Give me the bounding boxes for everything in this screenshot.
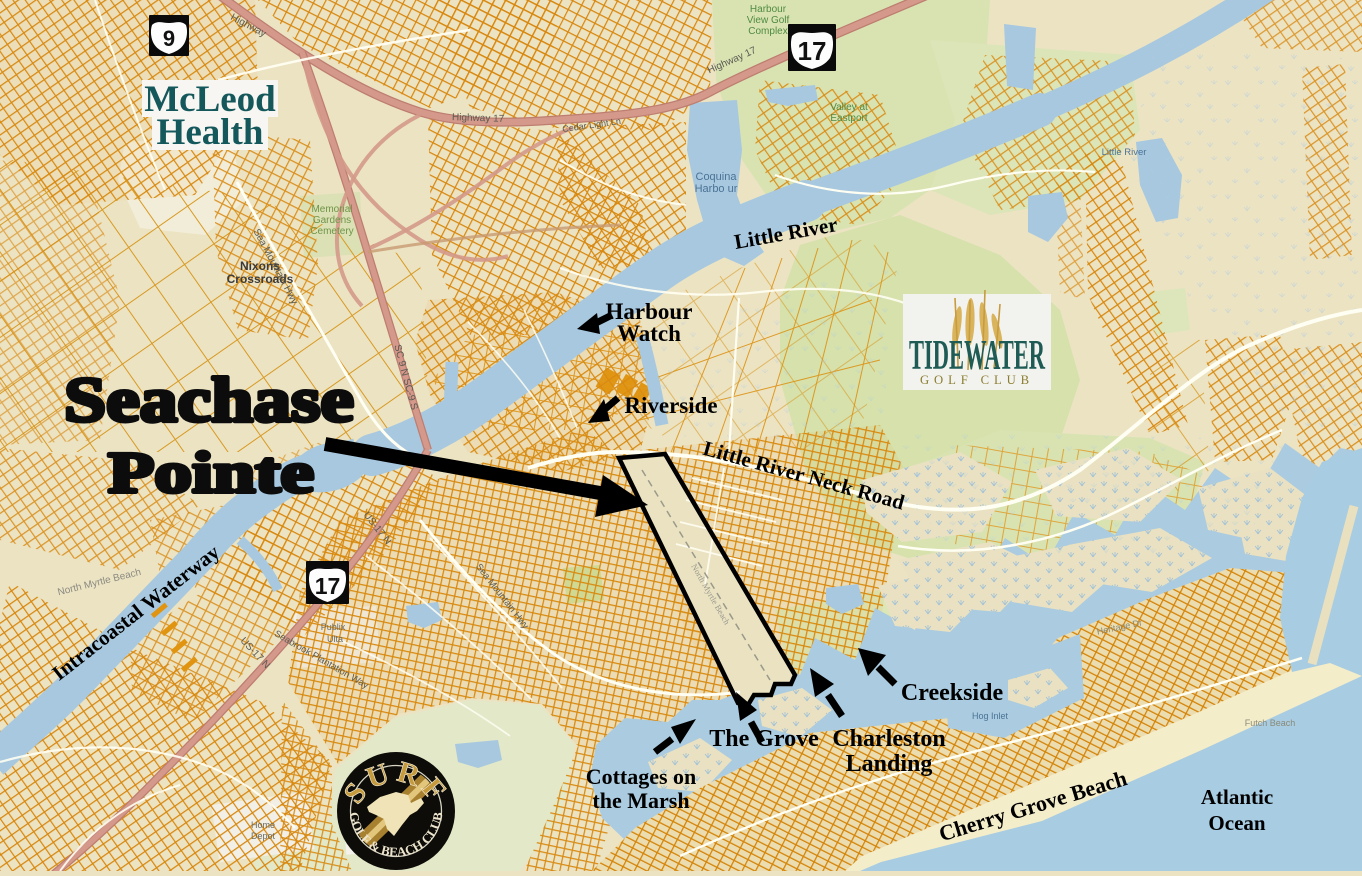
svg-text:View Golf: View Golf (747, 15, 790, 26)
svg-text:Hog Inlet: Hog Inlet (972, 711, 1009, 721)
svg-text:Harbo ur: Harbo ur (695, 183, 738, 195)
svg-text:Home: Home (251, 820, 275, 830)
svg-text:Pointe: Pointe (108, 440, 314, 505)
svg-text:17: 17 (315, 573, 341, 599)
svg-text:The Grove: The Grove (709, 726, 819, 752)
svg-text:Gardens: Gardens (313, 215, 351, 226)
svg-text:Riverside: Riverside (624, 393, 717, 418)
svg-text:Creekside: Creekside (901, 680, 1004, 706)
svg-text:Cottages on: Cottages on (586, 764, 697, 789)
svg-text:Health: Health (157, 112, 264, 153)
svg-text:Futch Beach: Futch Beach (1245, 718, 1296, 728)
svg-text:GOLF CLUB: GOLF CLUB (920, 372, 1034, 387)
svg-text:Atlantic: Atlantic (1201, 785, 1273, 809)
svg-text:Memorial: Memorial (311, 204, 352, 215)
svg-text:9: 9 (163, 26, 175, 51)
svg-text:Ocean: Ocean (1208, 811, 1265, 835)
svg-text:Valley at: Valley at (830, 102, 868, 113)
svg-text:Coquina: Coquina (696, 171, 738, 183)
svg-text:17: 17 (798, 36, 827, 66)
svg-text:Little River: Little River (1102, 147, 1147, 158)
svg-text:Eastport: Eastport (830, 113, 867, 124)
svg-text:Seachase: Seachase (64, 364, 354, 435)
svg-text:Highway 17: Highway 17 (452, 112, 505, 125)
svg-text:the Marsh: the Marsh (592, 788, 689, 813)
svg-text:Cemetery: Cemetery (310, 226, 353, 237)
svg-text:Landing: Landing (846, 751, 933, 777)
svg-text:Ulta: Ulta (327, 634, 343, 644)
svg-text:Watch: Watch (617, 321, 681, 346)
svg-text:Depot: Depot (251, 831, 276, 841)
svg-text:Publix: Publix (321, 622, 346, 632)
svg-text:Harbour: Harbour (750, 4, 787, 15)
svg-text:Complex: Complex (748, 26, 787, 37)
svg-text:Charleston: Charleston (832, 726, 945, 752)
